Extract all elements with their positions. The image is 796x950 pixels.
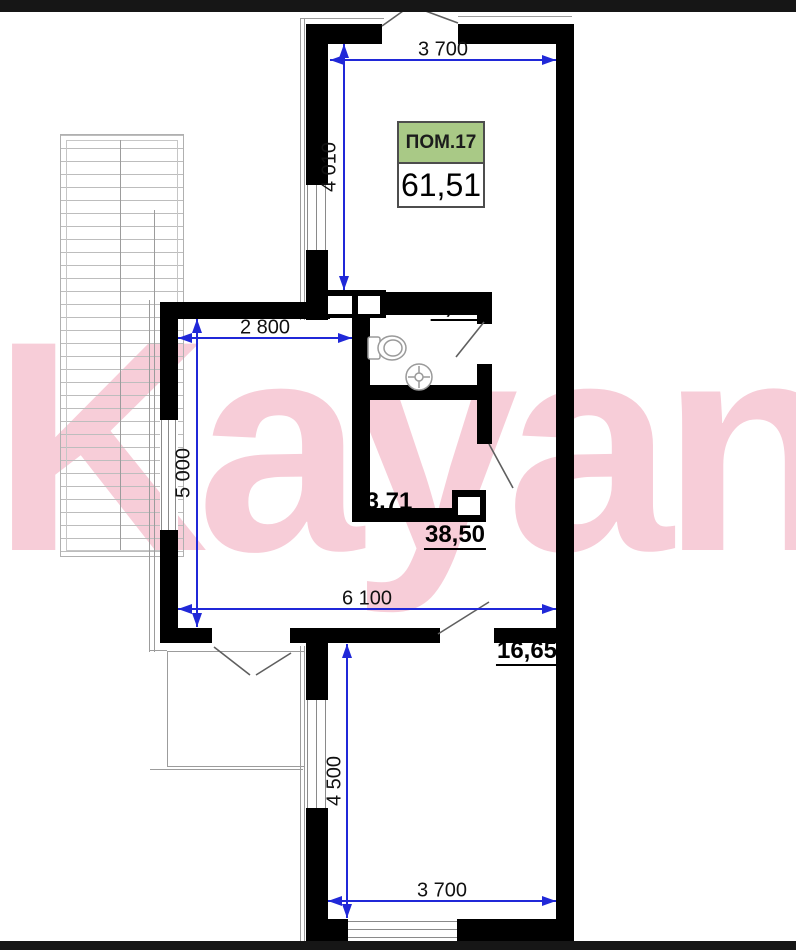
arrow-icon (178, 604, 192, 614)
room-area-living: 38,50 (424, 521, 486, 549)
room-area-bathroom: 2,65 (431, 292, 480, 320)
arrow-icon (338, 333, 352, 343)
dimension-line-mid-height (196, 319, 198, 627)
arrow-icon (339, 276, 349, 290)
toilet-icon (368, 336, 406, 360)
arrow-icon (542, 896, 556, 906)
letterbox-top (0, 0, 796, 12)
arrow-icon (178, 333, 192, 343)
arrow-icon (342, 904, 352, 918)
arrow-icon (328, 896, 342, 906)
dimension-label-bottom-width: 3 700 (417, 880, 467, 903)
dimension-label-mid-width: 2 800 (240, 317, 290, 340)
unit-total-area: 61,51 (399, 164, 483, 206)
unit-info-box: ПОМ.17 61,51 (397, 121, 485, 208)
arrow-icon (192, 613, 202, 627)
bedroom-door-swing (438, 602, 489, 634)
unit-name-badge: ПОМ.17 (399, 123, 483, 164)
storage-door-swing (489, 444, 513, 488)
arrow-icon (339, 44, 349, 58)
dimension-line-top-height (343, 44, 345, 290)
letterbox-bottom (0, 941, 796, 950)
dimension-label-top-width: 3 700 (418, 39, 468, 62)
dimension-label-bottom-height: 4 500 (324, 756, 347, 806)
arrow-icon (542, 55, 556, 65)
room-area-bedroom: 16,65 (496, 637, 558, 665)
arrow-icon (542, 604, 556, 614)
arrow-icon (192, 319, 202, 333)
arrow-icon (342, 644, 352, 658)
bathroom-door-swing (456, 322, 484, 357)
room-area-storage: 3,71 (365, 488, 414, 516)
dimension-label-mid-height: 5 000 (173, 448, 196, 498)
balcony-door-swing (214, 647, 291, 675)
dimension-label-full-width: 6 100 (342, 588, 392, 611)
sink-icon (406, 364, 432, 390)
dimension-label-top-height: 4 010 (319, 142, 342, 192)
floor-plan: Kayan (0, 0, 796, 950)
